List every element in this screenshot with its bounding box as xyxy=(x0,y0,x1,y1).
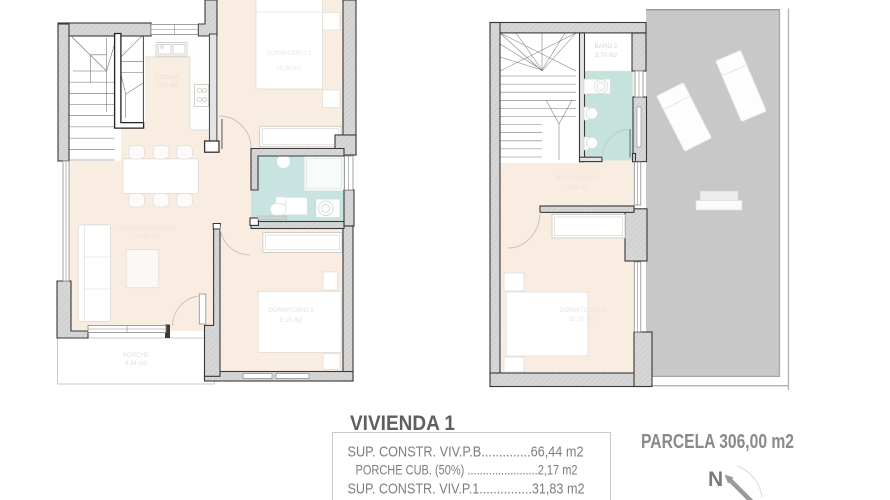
svg-text:4,80 m2: 4,80 m2 xyxy=(567,184,590,191)
svg-text:DORMITORIO 1: DORMITORIO 1 xyxy=(266,50,312,57)
svg-text:DORMITORIO 2: DORMITORIO 2 xyxy=(268,307,314,314)
svg-text:8,15 m2: 8,15 m2 xyxy=(280,317,303,324)
svg-text:BAÑO 2: BAÑO 2 xyxy=(595,43,618,50)
svg-text:11,70 m2: 11,70 m2 xyxy=(569,316,595,323)
svg-text:PARCELA 306,00 m2: PARCELA 306,00 m2 xyxy=(641,431,794,453)
svg-text:SALON-COMEDOR: SALON-COMEDOR xyxy=(119,225,175,232)
svg-text:PORCHE CUB. (50%) ............: PORCHE CUB. (50%) ......................… xyxy=(356,462,578,478)
svg-text:3,70 m2: 3,70 m2 xyxy=(595,52,618,59)
svg-text:SUP. CONSTR. VIV.P.B..........: SUP. CONSTR. VIV.P.B..............66,44 … xyxy=(348,444,584,461)
svg-text:N: N xyxy=(708,468,723,491)
svg-text:DISTRIBUIDOR: DISTRIBUIDOR xyxy=(556,175,601,182)
svg-text:PORCHE: PORCHE xyxy=(123,352,149,359)
svg-text:7,25 m2: 7,25 m2 xyxy=(156,82,179,89)
svg-text:SUP. CONSTR. VIV.P.1..........: SUP. CONSTR. VIV.P.1...............31,83… xyxy=(348,481,585,498)
svg-text:DORMITORIO 3: DORMITORIO 3 xyxy=(559,307,605,314)
svg-text:21,15 m2: 21,15 m2 xyxy=(134,233,160,240)
svg-text:4,34 m2: 4,34 m2 xyxy=(125,360,148,367)
svg-text:COCINA: COCINA xyxy=(155,74,180,81)
svg-text:VIVIENDA 1: VIVIENDA 1 xyxy=(350,411,455,435)
svg-text:10,25 m2: 10,25 m2 xyxy=(276,65,302,72)
